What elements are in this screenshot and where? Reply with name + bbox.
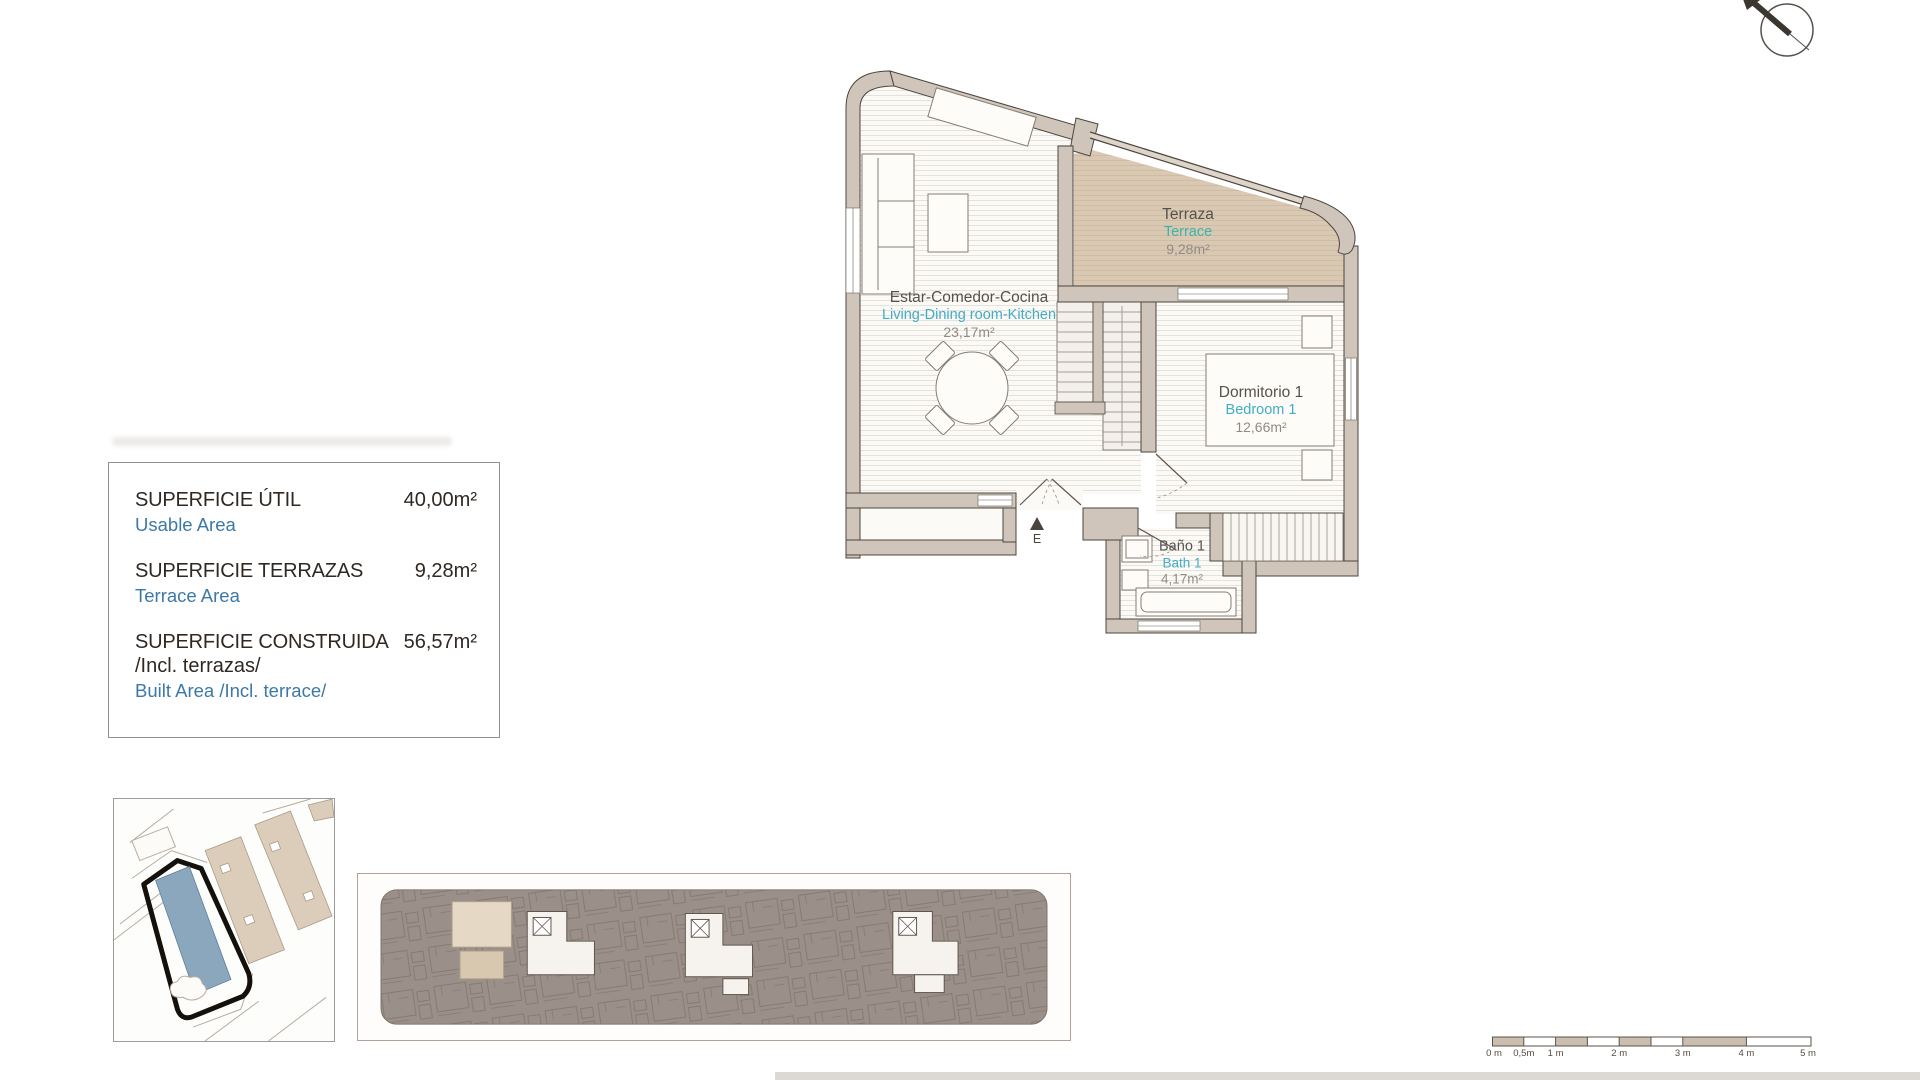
entry-arrow-icon <box>1030 517 1044 530</box>
site-building-outline <box>132 827 176 861</box>
scale-label: 4 m <box>1738 1048 1754 1059</box>
site-plan <box>113 798 335 1042</box>
scale-label: 0 m <box>1486 1048 1502 1059</box>
info-row-terrace: SUPERFICIE TERRAZAS 9,28m² Terrace Area <box>135 560 477 607</box>
room-label-living: Estar-Comedor-Cocina Living-Dining room-… <box>882 289 1056 341</box>
surface-info-panel: SUPERFICIE ÚTIL 40,00m² Usable Area SUPE… <box>108 462 500 738</box>
info-row-usable: SUPERFICIE ÚTIL 40,00m² Usable Area <box>135 489 477 536</box>
north-arrow-icon <box>1738 0 1830 66</box>
label-superficie-util: SUPERFICIE ÚTIL <box>135 489 301 512</box>
scale-label: 1 m <box>1548 1048 1564 1059</box>
site-plan-drawing <box>114 799 334 1041</box>
label-superficie-construida: SUPERFICIE CONSTRUIDA <box>135 631 389 654</box>
info-row-built: SUPERFICIE CONSTRUIDA 56,57m² /Incl. ter… <box>135 631 477 702</box>
coffee-table <box>928 194 968 252</box>
faint-watermark <box>112 437 452 446</box>
label-incl-terrazas: /Incl. terrazas/ <box>135 655 477 678</box>
nightstand <box>1302 450 1332 480</box>
nightstand <box>1302 316 1332 348</box>
dining-table <box>925 341 1019 435</box>
scale-bar-drawing <box>1492 1033 1812 1047</box>
label-built-area-en: Built Area /Incl. terrace/ <box>135 680 477 702</box>
scale-label: 0,5m <box>1513 1048 1534 1059</box>
site-pond <box>170 976 206 1000</box>
floor-plan: Terraza Terrace 9,28m² Estar-Comedor-Coc… <box>838 58 1398 638</box>
label-superficie-terrazas: SUPERFICIE TERRAZAS <box>135 560 363 583</box>
page: Terraza Terrace 9,28m² Estar-Comedor-Coc… <box>0 0 1920 1080</box>
lower-terrace-strip <box>859 508 1016 540</box>
room-label-bath: Baño 1 Bath 1 4,17m² <box>1159 539 1205 588</box>
scale-label: 3 m <box>1675 1048 1691 1059</box>
wardrobe <box>1223 513 1343 561</box>
entry-label: E <box>1033 532 1041 546</box>
building-overview-plan <box>358 874 1070 1040</box>
label-usable-area-en: Usable Area <box>135 514 477 536</box>
value-terrace-area: 9,28m² <box>415 560 477 583</box>
floor-plan-drawing <box>838 58 1398 638</box>
value-built-area: 56,57m² <box>404 631 477 654</box>
value-usable-area: 40,00m² <box>404 489 477 512</box>
bottom-page-edge <box>775 1072 1920 1080</box>
scale-label: 5 m <box>1800 1048 1816 1059</box>
building-overview <box>357 873 1071 1041</box>
scale-bar: 0 m 0,5m 1 m 2 m 3 m 4 m 5 m <box>1492 1033 1822 1063</box>
site-neighbor-buildings <box>205 799 334 964</box>
sofa <box>862 154 914 294</box>
room-label-terraza: Terraza Terrace 9,28m² <box>1162 206 1214 258</box>
scale-label: 2 m <box>1611 1048 1627 1059</box>
room-label-bedroom: Dormitorio 1 Bedroom 1 12,66m² <box>1219 384 1303 436</box>
label-terrace-area-en: Terrace Area <box>135 585 477 607</box>
